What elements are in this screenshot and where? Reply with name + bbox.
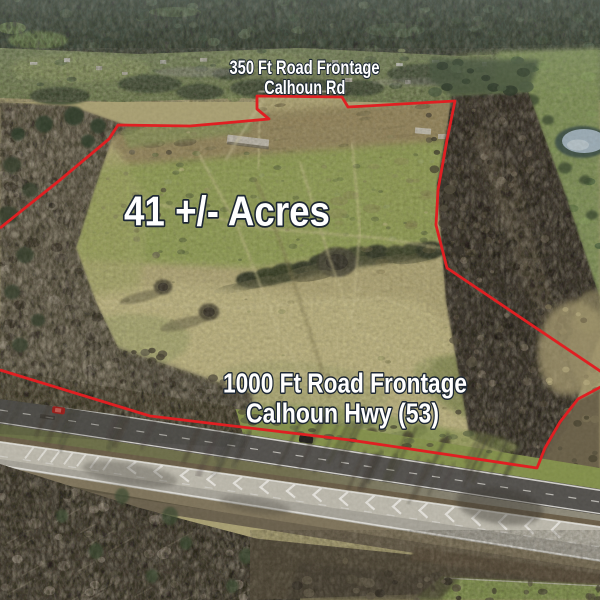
svg-text:41 +/- Acres: 41 +/- Acres (124, 188, 330, 235)
svg-text:350 Ft Road Frontage: 350 Ft Road Frontage (230, 57, 380, 79)
svg-text:1000 Ft Road Frontage: 1000 Ft Road Frontage (223, 368, 467, 399)
svg-text:Calhoun Hwy (53): Calhoun Hwy (53) (246, 398, 439, 429)
svg-text:Calhoun Rd: Calhoun Rd (264, 77, 345, 99)
